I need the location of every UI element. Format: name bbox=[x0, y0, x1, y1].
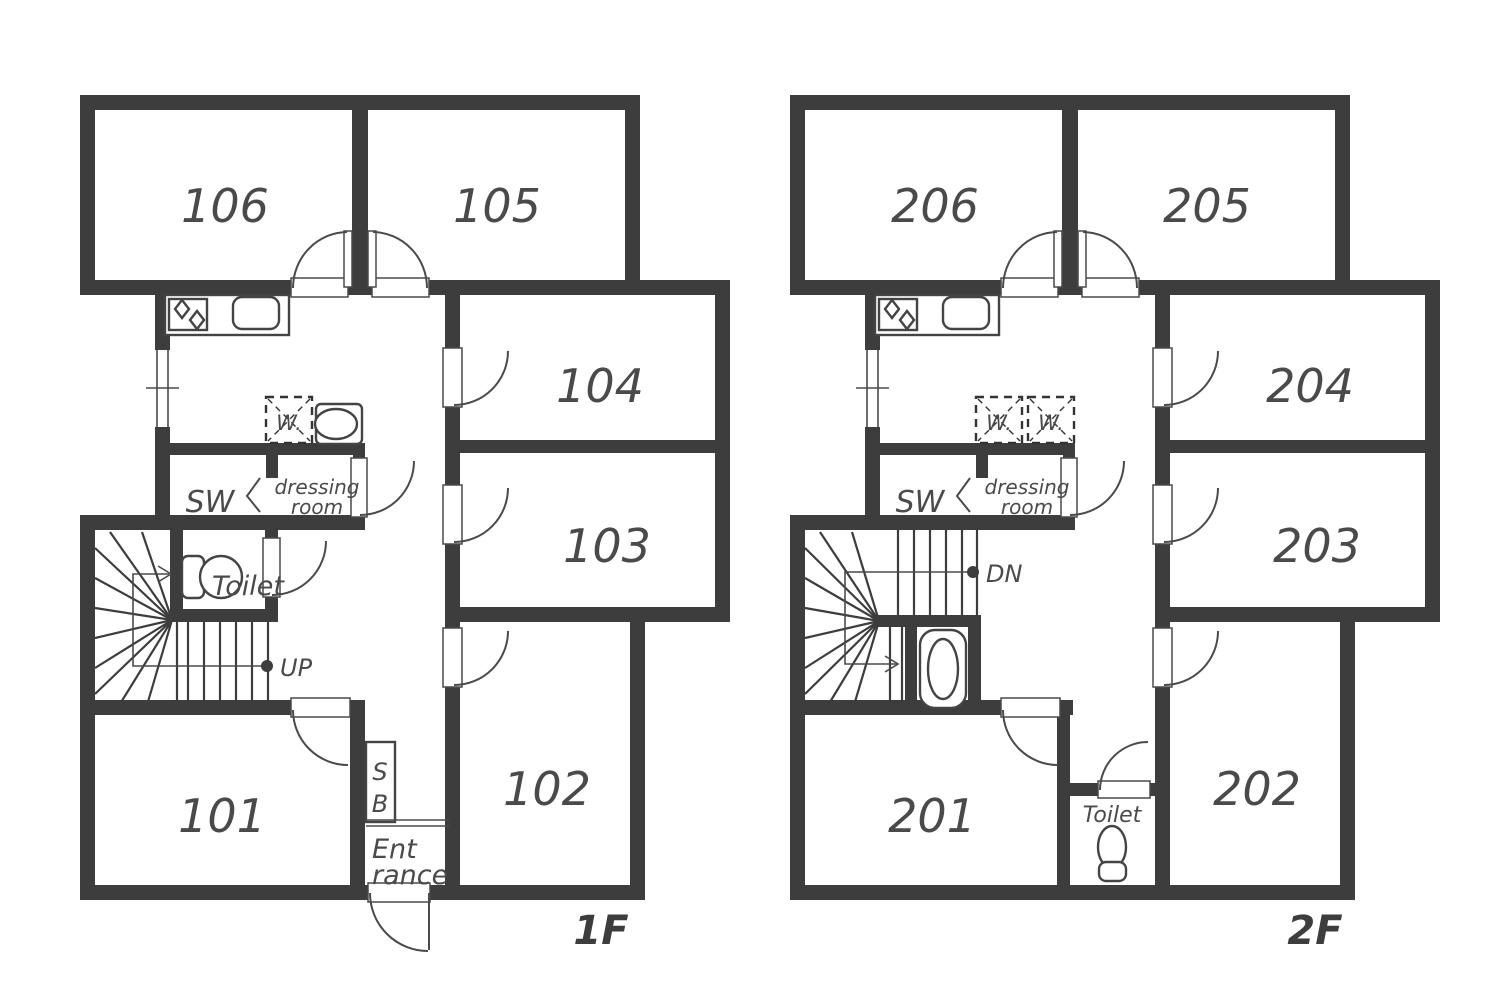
toilet-label-1f: Toilet bbox=[212, 571, 285, 602]
door-201 bbox=[1001, 698, 1060, 765]
toilet-front-icon-2f bbox=[1098, 826, 1126, 881]
toilet-label-2f: Toilet bbox=[1083, 803, 1143, 828]
dn-label: DN bbox=[986, 560, 1022, 588]
room-label-102: 102 bbox=[503, 762, 591, 816]
floor-1f-plan: 106 105 104 103 102 101 SW dressing room… bbox=[80, 95, 730, 954]
walls-2f bbox=[790, 95, 1440, 900]
bathtub-icon-2f bbox=[920, 630, 966, 708]
room-label-105: 105 bbox=[453, 179, 541, 233]
up-dot bbox=[261, 660, 273, 672]
floor-2f-plan: 206 205 204 203 202 201 SW dressing room… bbox=[790, 95, 1440, 954]
room-label-204: 204 bbox=[1266, 359, 1354, 413]
basin-icon-1f bbox=[315, 404, 362, 444]
sw-label-2f: SW bbox=[896, 485, 946, 520]
folding-door-sw-1f bbox=[247, 478, 260, 512]
sink-icon-1f bbox=[233, 297, 279, 329]
door-202 bbox=[1153, 628, 1218, 687]
sw-label-1f: SW bbox=[186, 485, 236, 520]
door-106 bbox=[291, 231, 352, 297]
entrance-door bbox=[368, 883, 430, 951]
room-label-104: 104 bbox=[556, 359, 644, 413]
door-203 bbox=[1153, 485, 1218, 544]
door-206 bbox=[1001, 231, 1062, 297]
floor-label-2f: 2F bbox=[1287, 908, 1342, 954]
floorplan-page: 106 105 104 103 102 101 SW dressing room… bbox=[0, 0, 1500, 1000]
dn-dot bbox=[967, 566, 979, 578]
window-2f bbox=[856, 350, 889, 427]
door-dressing-2f bbox=[1061, 458, 1124, 517]
door-102 bbox=[443, 628, 508, 687]
door-104 bbox=[443, 348, 508, 407]
door-105 bbox=[368, 231, 429, 297]
stair-treads-1f bbox=[177, 622, 268, 700]
room-label-205: 205 bbox=[1163, 179, 1251, 233]
room-label-201: 201 bbox=[888, 789, 976, 843]
kitchen-2f bbox=[875, 295, 999, 335]
room-label-101: 101 bbox=[178, 789, 266, 843]
door-101 bbox=[291, 698, 350, 765]
door-dressing-1f bbox=[351, 458, 414, 517]
sink-icon-2f bbox=[943, 297, 989, 329]
folding-door-sw-2f bbox=[957, 478, 970, 512]
shoebox-label-line1: S bbox=[372, 758, 387, 786]
room-label-103: 103 bbox=[563, 519, 651, 573]
room-label-202: 202 bbox=[1213, 762, 1301, 816]
up-label: UP bbox=[280, 654, 313, 682]
door-toilet-2f bbox=[1098, 742, 1150, 798]
door-204 bbox=[1153, 348, 1218, 407]
door-205 bbox=[1078, 231, 1139, 297]
entrance-label-line2: rance bbox=[372, 860, 448, 891]
floor-label-1f: 1F bbox=[573, 908, 628, 954]
door-103 bbox=[443, 485, 508, 544]
walls-1f bbox=[80, 95, 730, 900]
washer-label-2f-right: W. bbox=[1038, 411, 1064, 435]
dressing-room-label-1f-line2: room bbox=[291, 495, 343, 519]
room-label-206: 206 bbox=[891, 179, 979, 233]
shoebox-label-line2: B bbox=[372, 790, 388, 818]
kitchen-1f bbox=[165, 295, 289, 335]
room-label-106: 106 bbox=[181, 179, 269, 233]
dressing-room-label-2f-line2: room bbox=[1001, 495, 1053, 519]
window-1f bbox=[146, 350, 179, 427]
stair-winders-2f bbox=[805, 532, 879, 712]
room-label-203: 203 bbox=[1273, 519, 1361, 573]
washer-label-1f: W. bbox=[276, 411, 302, 435]
stove-icon-1f bbox=[169, 299, 207, 330]
washer-label-2f-left: W. bbox=[986, 411, 1012, 435]
floorplan-canvas: 106 105 104 103 102 101 SW dressing room… bbox=[0, 0, 1500, 1000]
stove-icon-2f bbox=[879, 299, 917, 330]
